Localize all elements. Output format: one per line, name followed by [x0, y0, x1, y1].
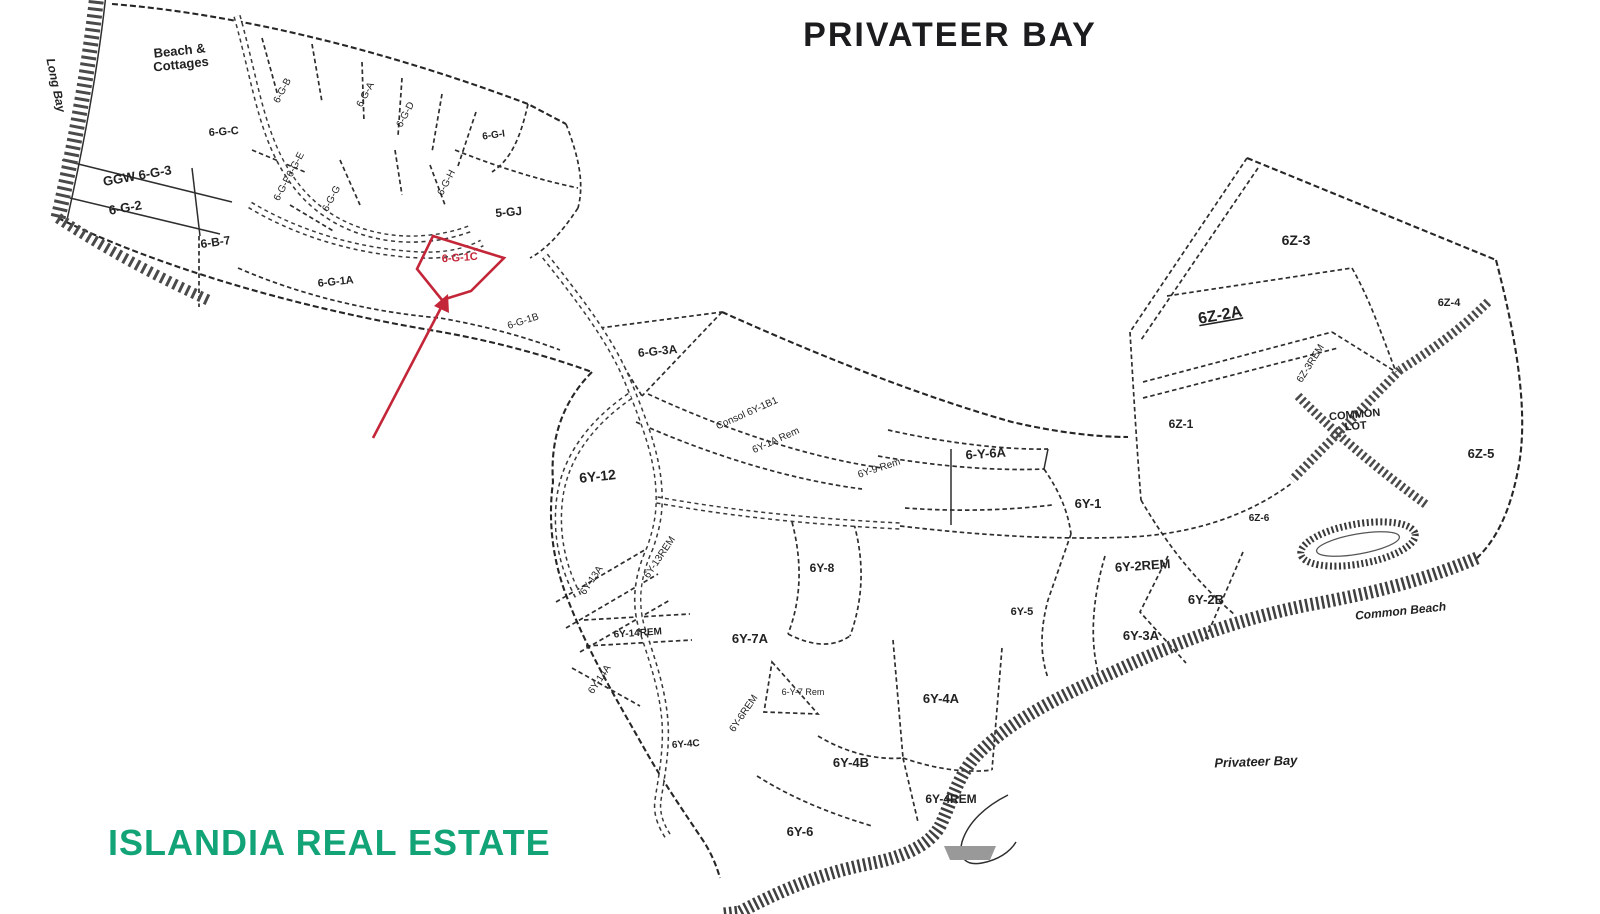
map-label-6y-9-rem: 6Y-9 Rem	[857, 457, 902, 481]
map-label-6-y-6a: 6-Y-6A	[965, 445, 1007, 463]
map-label-6y-1: 6Y-1	[1075, 496, 1102, 511]
map-label-6y-5: 6Y-5	[1011, 606, 1034, 618]
map-label-6-g-1a: 6-G-1A	[317, 274, 354, 290]
map-label-6-g-1b: 6-G-1B	[506, 311, 540, 332]
plat-map-page: PRIVATEER BAY	[0, 0, 1600, 914]
northeast-road	[1400, 302, 1488, 370]
map-label-6-g-b: 6-G-B	[272, 76, 294, 105]
hatched-roads	[58, 0, 1488, 914]
map-label-6y-13a: 6Y-13A	[578, 564, 605, 597]
map-label-6y-2rem: 6Y-2REM	[1114, 556, 1171, 575]
map-label-6z-1: 6Z-1	[1169, 417, 1194, 431]
map-label-6z-3rem: 6Z-3REM	[1295, 343, 1327, 385]
map-label-6-g-d: 6-G-D	[395, 100, 417, 129]
map-label-beach-cottages: Beach &Cottages	[151, 40, 209, 74]
map-label-6y-6: 6Y-6	[787, 824, 814, 839]
map-label-5-gj: 5-GJ	[495, 204, 523, 220]
map-label-6-y-7-rem: 6-Y-7 Rem	[782, 687, 825, 697]
map-label-6y-4a: 6Y-4A	[923, 691, 960, 706]
map-label-consol-6y-1b1: Consol 6Y-1B1	[714, 395, 779, 432]
map-label-6z-3: 6Z-3	[1282, 232, 1311, 248]
map-label-6z-4: 6Z-4	[1438, 297, 1462, 309]
map-label-privateer-bay: Privateer Bay	[1214, 753, 1298, 771]
beach-cove	[944, 846, 996, 860]
callout-arrowhead	[434, 294, 449, 313]
map-label-6z-5: 6Z-5	[1468, 446, 1495, 461]
map-label-6-g-g: 6-G-G	[320, 184, 343, 214]
map-label-6y-7a: 6Y-7A	[732, 631, 769, 646]
highlighted-lot-outline	[417, 236, 504, 300]
map-label-6y-6rem: 6Y-6REM	[728, 693, 761, 734]
map-label-common-beach: Common Beach	[1354, 599, 1446, 622]
map-label-6-g-1c: 6-G-1C	[441, 251, 478, 265]
map-label-6y-2b: 6Y-2B	[1188, 592, 1224, 607]
map-label-6-g-a: 6-G-A	[355, 80, 377, 109]
map-label-6y-8: 6Y-8	[810, 561, 835, 575]
map-label-6y-4b: 6Y-4B	[833, 755, 869, 770]
map-label-6y-1a-rem: 6Y-1A Rem	[751, 425, 801, 455]
map-label-6y-14rem: 6Y-14REM	[613, 626, 662, 640]
map-label-6y-3a: 6Y-3A	[1123, 628, 1160, 643]
credit-text: ISLANDIA REAL ESTATE	[108, 822, 668, 864]
lot-labels: Long BayBeach &Cottages6-G-B6-G-A6-G-D6-…	[43, 40, 1494, 839]
map-label-6-g-f: 6-G-F	[272, 175, 294, 203]
highlighted-lot	[373, 236, 504, 438]
map-label-long-bay: Long Bay	[43, 57, 68, 115]
map-label-6-b-7: 6-B-7	[200, 233, 232, 251]
salt-pond	[1297, 514, 1418, 574]
map-label-6y-4rem: 6Y-4REM	[925, 792, 976, 806]
roads	[237, 16, 900, 838]
map-label-6-g-c: 6-G-C	[208, 125, 239, 139]
map-label-6z-2a: 6Z-2A	[1197, 303, 1244, 328]
map-label-6-g-h: 6-G-H	[436, 168, 458, 197]
map-label-6-g-3a: 6-G-3A	[637, 342, 678, 360]
map-label-6-g-i: 6-G-I	[482, 128, 506, 142]
map-label-6z-6: 6Z-6	[1249, 513, 1270, 524]
map-label-6y-4c: 6Y-4C	[672, 738, 700, 751]
map-label-6y-12: 6Y-12	[578, 466, 616, 486]
plat-map: Long BayBeach &Cottages6-G-B6-G-A6-G-D6-…	[0, 0, 1600, 914]
